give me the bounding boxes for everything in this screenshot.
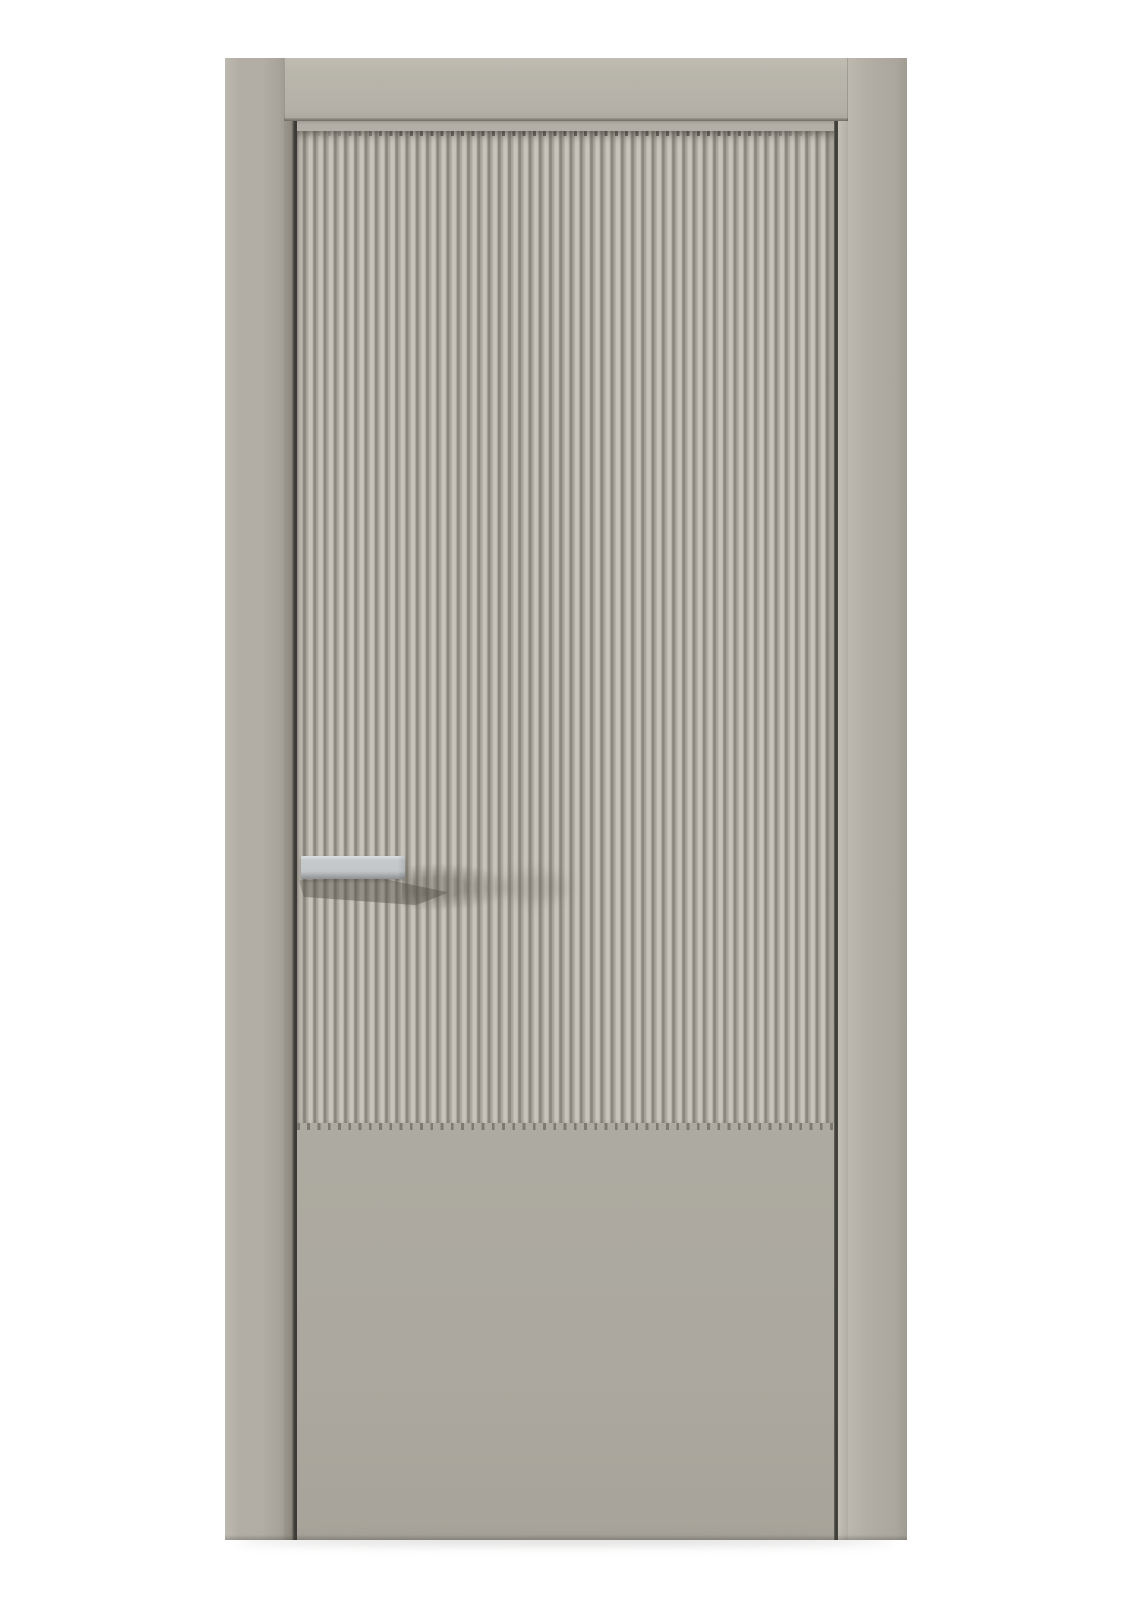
door-leaf-area — [284, 121, 848, 1540]
handle-shadow-fade — [498, 872, 568, 902]
door-frame-header — [284, 58, 848, 121]
door-frame-right-jamb — [848, 58, 907, 1540]
right-jamb-edge-highlight — [838, 121, 848, 1540]
door-leaf — [297, 121, 834, 1540]
door-frame-left-jamb — [225, 58, 284, 1540]
leaf-lower-flat-panel — [297, 1134, 834, 1540]
door-gap-left — [284, 121, 297, 1540]
product-photo — [0, 0, 1131, 1600]
door-handle — [301, 856, 405, 879]
fluted-panel — [297, 131, 834, 1123]
door — [225, 58, 907, 1540]
fluted-panel-top-shadow — [297, 131, 834, 136]
leaf-top-rail — [297, 121, 834, 131]
floor-shadow — [235, 1537, 895, 1545]
